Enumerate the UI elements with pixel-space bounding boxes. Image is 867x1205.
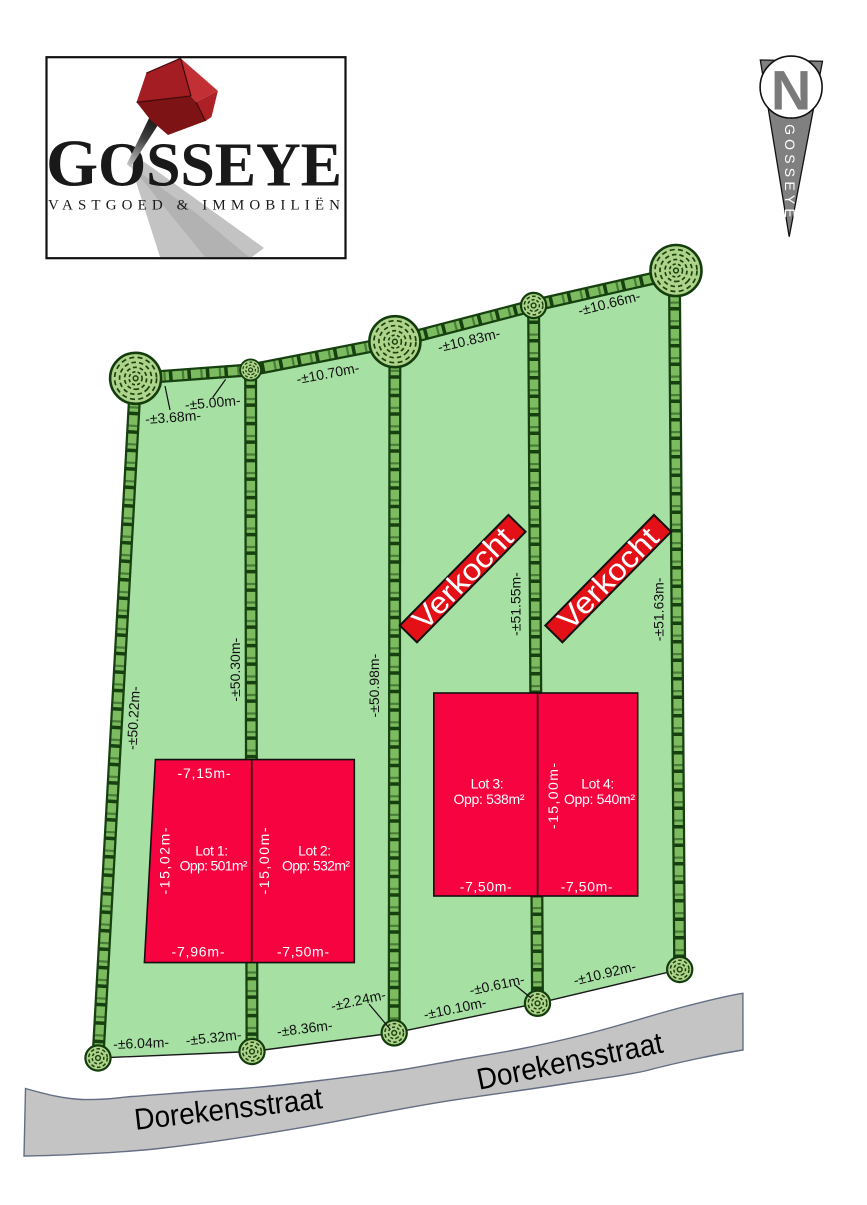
svg-text:Opp: 540m²: Opp: 540m² xyxy=(564,791,635,807)
svg-text:-7,50m-: -7,50m- xyxy=(460,878,512,894)
svg-text:Dorekensstraat: Dorekensstraat xyxy=(474,1027,666,1097)
svg-text:Lot 1:: Lot 1: xyxy=(195,842,228,858)
svg-text:Opp: 532m²: Opp: 532m² xyxy=(282,858,350,874)
svg-text:Lot 4:: Lot 4: xyxy=(581,776,614,792)
svg-text:-15,00m-: -15,00m- xyxy=(545,763,561,829)
svg-text:-15,00m-: -15,00m- xyxy=(256,827,272,894)
svg-text:Lot 2:: Lot 2: xyxy=(298,842,331,858)
svg-text:-±50.22m-: -±50.22m- xyxy=(124,685,143,750)
svg-text:-±51.55m-: -±51.55m- xyxy=(508,572,524,636)
svg-text:-±51.63m-: -±51.63m- xyxy=(651,577,667,641)
svg-text:N: N xyxy=(771,59,811,122)
svg-text:-±50.98m-: -±50.98m- xyxy=(366,653,382,717)
svg-text:-±50.30m-: -±50.30m- xyxy=(227,638,243,702)
svg-text:Opp: 538m²: Opp: 538m² xyxy=(454,791,525,807)
svg-text:-15,02m-: -15,02m- xyxy=(156,827,172,894)
svg-text:GOSSEYE: GOSSEYE xyxy=(782,124,798,222)
svg-text:-7,96m-: -7,96m- xyxy=(172,943,225,959)
svg-text:-7,50m-: -7,50m- xyxy=(277,943,329,959)
svg-text:-7,50m-: -7,50m- xyxy=(561,878,613,894)
svg-text:-±6.04m-: -±6.04m- xyxy=(113,1034,170,1052)
svg-text:VASTGOED & IMMOBILIËN: VASTGOED & IMMOBILIËN xyxy=(48,197,340,214)
svg-text:-7,15m-: -7,15m- xyxy=(178,765,231,781)
svg-text:Lot 3:: Lot 3: xyxy=(471,776,504,792)
svg-text:Opp: 501m²: Opp: 501m² xyxy=(180,858,248,874)
svg-text:GOSSEYE: GOSSEYE xyxy=(46,126,342,200)
